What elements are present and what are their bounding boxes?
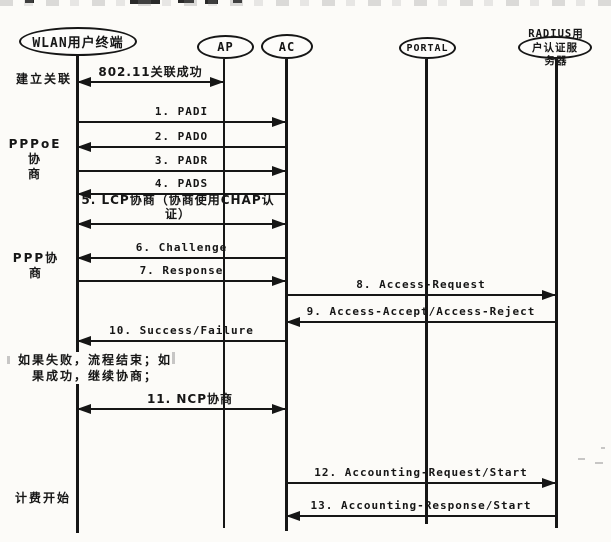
message-arrow [78,253,285,263]
message-arrow [78,117,285,127]
message-arrow [287,317,555,327]
actor-label-above: RADIUS用 [511,26,601,41]
arrowhead-left-icon [286,511,300,521]
phase-accounting-start: 计费开始 [8,491,78,506]
message-arrow [287,478,555,488]
scan-artifact [172,352,175,364]
message-arrow [287,511,555,521]
phase-establish-association: 建立关联 [11,72,77,87]
arrow-shaft [78,121,285,123]
sequence-diagram: 802.11关联成功1. PADI2. PADO3. PADR4. PADS5.… [0,0,611,542]
arrow-shaft [287,321,555,323]
scan-artifact [601,447,605,449]
arrowhead-left-icon [77,336,91,346]
message-arrow [78,142,285,152]
actor-label-below: 务器 [511,53,601,68]
message-label: 10. Success/Failure [42,324,322,337]
message-label: 2. PADO [42,130,322,143]
actor-ap: AP [197,35,254,59]
actor-label: WLAN用户终端 [32,32,123,51]
actor-ac: AC [261,34,313,59]
scan-artifact [595,462,603,464]
arrow-shaft [287,482,555,484]
actor-portal: PORTAL [399,37,456,59]
message-label: 12. Accounting-Request/Start [281,466,561,479]
actor-label: PORTAL [406,43,448,54]
arrow-shaft [78,223,285,225]
arrow-shaft [78,170,285,172]
message-label: 7. Response [42,264,322,277]
note-failure-success: 如果失败，流程结束；如 果成功，继续协商； [10,352,180,384]
actor-label: AP [217,40,233,54]
lifeline-terminal [76,56,79,533]
arrow-shaft [78,81,223,83]
message-label: 4. PADS [42,177,322,190]
arrow-shaft [287,294,555,296]
message-arrow [78,276,285,286]
actor-label: AC [279,40,295,54]
message-arrow [78,336,285,346]
message-label: 5. LCP协商（协商使用CHAP认 证） [72,193,284,221]
arrowhead-right-icon [542,290,556,300]
message-label: 6. Challenge [42,241,322,254]
message-label: 13. Accounting-Response/Start [281,499,561,512]
message-arrow [78,166,285,176]
arrowhead-left-icon [77,253,91,263]
arrow-shaft [78,257,285,259]
message-label: 9. Access-Accept/Access-Reject [281,305,561,318]
scan-noise-strip [0,0,611,6]
message-label: 3. PADR [42,154,322,167]
arrowhead-left-icon [77,142,91,152]
scan-artifact [578,458,585,460]
arrowhead-right-icon [272,117,286,127]
arrow-shaft [287,515,555,517]
arrowhead-right-icon [542,478,556,488]
message-arrow [287,290,555,300]
arrowhead-right-icon [272,166,286,176]
phase-ppp-negotiation: PPP协商 [8,251,64,281]
actor-terminal: WLAN用户终端 [19,27,137,56]
message-label: 8. Access-Request [281,278,561,291]
phase-pppoe-negotiation: PPPoE协 商 [4,137,66,182]
scan-artifact [7,356,10,364]
arrow-shaft [78,146,285,148]
message-label: 11. NCP协商 [50,392,330,406]
arrow-shaft [78,280,285,282]
message-label: 1. PADI [42,105,322,118]
arrow-shaft [78,340,285,342]
arrow-shaft [78,408,285,410]
